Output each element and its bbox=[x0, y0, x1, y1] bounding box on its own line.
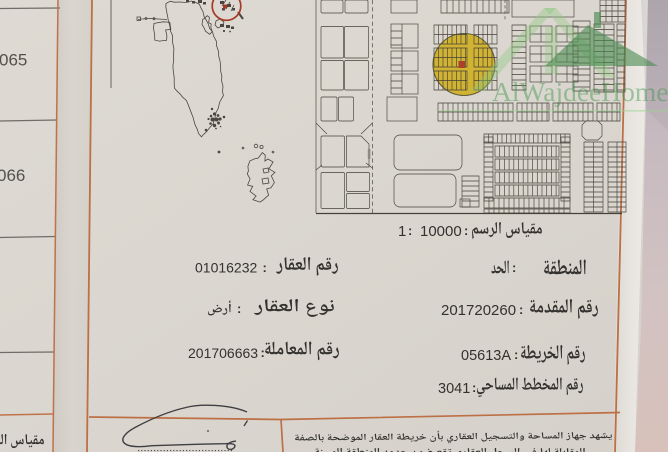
svg-text::: : bbox=[408, 223, 412, 238]
svg-text:201706663: 201706663 bbox=[188, 345, 258, 361]
svg-text:1: 1 bbox=[398, 223, 406, 240]
svg-text:065: 065 bbox=[0, 51, 27, 70]
svg-text:201720260: 201720260 bbox=[441, 302, 516, 319]
svg-text:01016232: 01016232 bbox=[195, 260, 258, 276]
svg-text::: : bbox=[237, 301, 241, 316]
svg-text:3041: 3041 bbox=[438, 381, 470, 397]
svg-text::: : bbox=[514, 347, 518, 362]
svg-text:066: 066 bbox=[0, 166, 25, 185]
svg-text:10000: 10000 bbox=[420, 223, 462, 240]
svg-text::: : bbox=[261, 345, 265, 360]
svg-text::: : bbox=[472, 380, 476, 395]
svg-text::: : bbox=[464, 223, 468, 238]
svg-text::: : bbox=[512, 260, 516, 275]
svg-text::: : bbox=[519, 302, 523, 317]
svg-text:AlWajdeeHomes: AlWajdeeHomes bbox=[492, 76, 668, 107]
svg-text:05613A: 05613A bbox=[461, 348, 511, 364]
svg-text::: : bbox=[263, 260, 267, 275]
